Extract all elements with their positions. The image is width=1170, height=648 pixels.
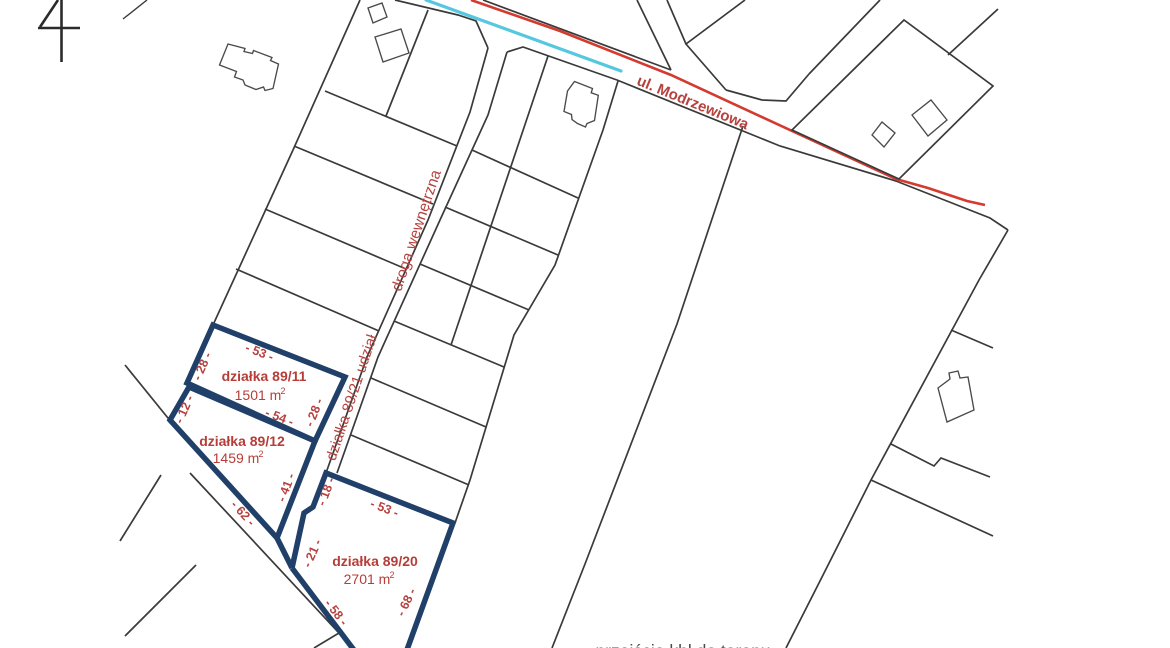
svg-text:działka 89/20: działka 89/20	[332, 553, 418, 569]
svg-text:działka 89/12: działka 89/12	[199, 433, 285, 449]
svg-text:2701 m: 2701 m	[344, 571, 391, 587]
svg-text:2: 2	[389, 570, 394, 580]
svg-text:2: 2	[280, 386, 285, 396]
svg-text:1501 m: 1501 m	[235, 387, 282, 403]
svg-text:1459 m: 1459 m	[213, 450, 260, 466]
svg-text:działka 89/11: działka 89/11	[222, 368, 307, 384]
svg-text:przejście kbl do terenu: przejście kbl do terenu	[595, 641, 770, 648]
svg-text:2: 2	[258, 449, 263, 459]
